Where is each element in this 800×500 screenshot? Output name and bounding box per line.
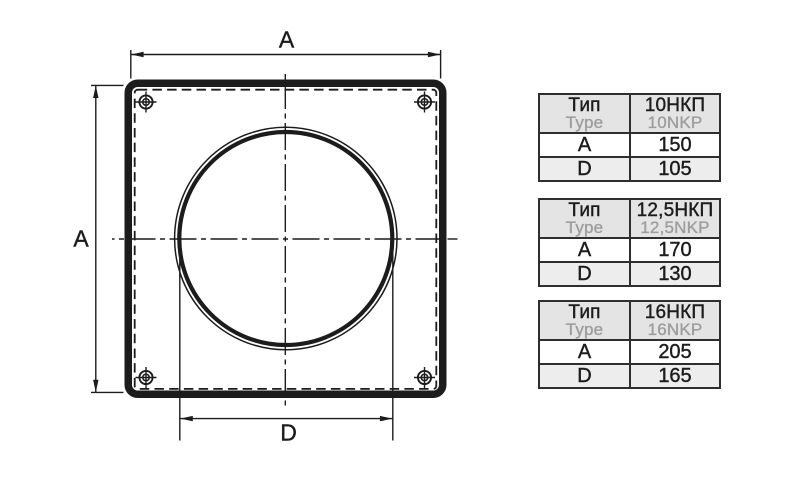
svg-text:D: D [280, 420, 297, 446]
svg-text:A: A [279, 27, 295, 53]
svg-text:A: A [73, 226, 89, 252]
